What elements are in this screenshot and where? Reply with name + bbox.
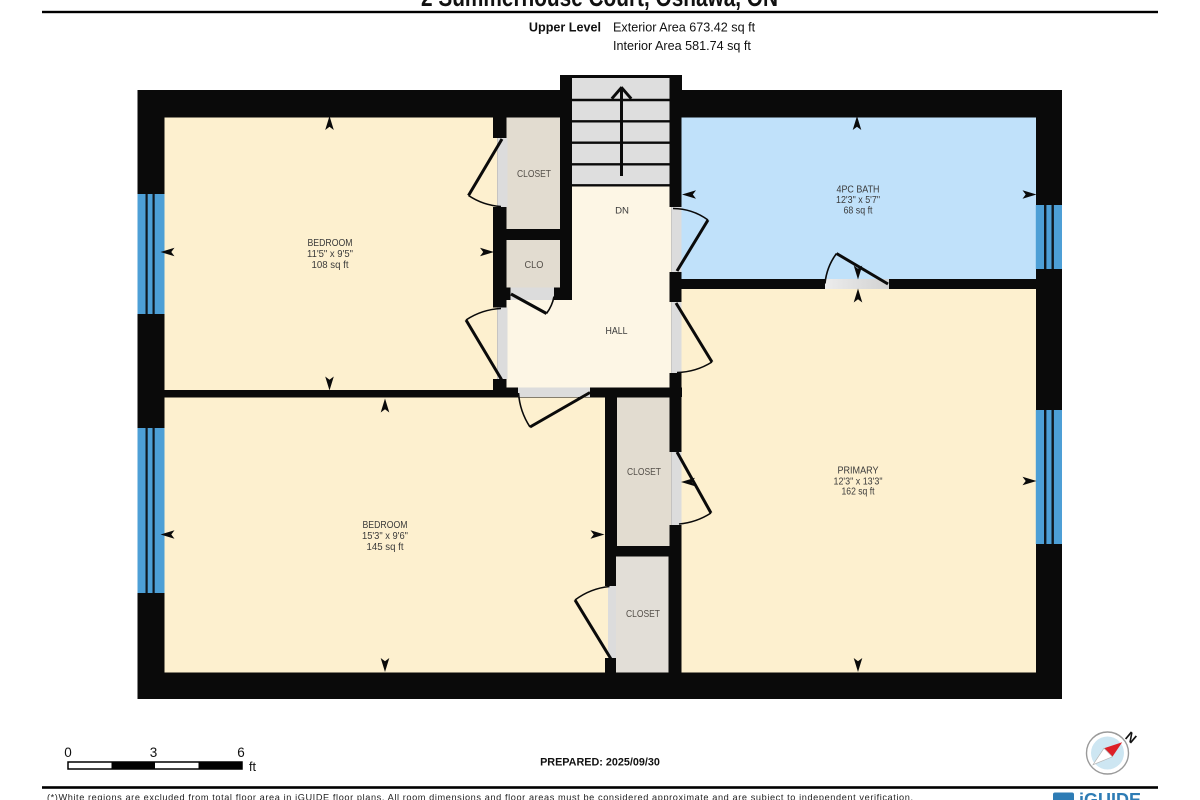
svg-text:BEDROOM: BEDROOM	[363, 520, 408, 531]
svg-text:ft: ft	[249, 760, 256, 774]
svg-text:DN: DN	[615, 206, 629, 217]
svg-text:Exterior Area 673.42 sq ft: Exterior Area 673.42 sq ft	[613, 21, 756, 35]
svg-text:CLOSET: CLOSET	[517, 169, 551, 180]
svg-text:12'3" x 5'7": 12'3" x 5'7"	[836, 195, 880, 206]
svg-text:CLOSET: CLOSET	[626, 609, 660, 620]
svg-text:CLOSET: CLOSET	[627, 467, 661, 478]
svg-text:0: 0	[64, 745, 72, 760]
svg-text:162 sq ft: 162 sq ft	[842, 487, 875, 498]
svg-text:2 Summerhouse Court, Oshawa, O: 2 Summerhouse Court, Oshawa, ON	[421, 0, 778, 12]
svg-text:PREPARED: 2025/09/30: PREPARED: 2025/09/30	[540, 757, 660, 769]
svg-text:Interior Area 581.74 sq ft: Interior Area 581.74 sq ft	[613, 39, 751, 53]
svg-text:6: 6	[237, 745, 245, 760]
svg-text:HALL: HALL	[606, 326, 628, 337]
svg-text:11'5" x 9'5": 11'5" x 9'5"	[307, 249, 353, 260]
svg-text:4PC BATH: 4PC BATH	[837, 185, 880, 196]
svg-text:Upper Level: Upper Level	[529, 21, 601, 35]
svg-text:15'3" x 9'6": 15'3" x 9'6"	[362, 531, 408, 542]
svg-text:CLO: CLO	[525, 260, 544, 271]
svg-text:(*)White regions are excluded: (*)White regions are excluded from total…	[47, 793, 913, 800]
svg-text:68 sq ft: 68 sq ft	[844, 206, 873, 217]
svg-text:108 sq ft: 108 sq ft	[312, 260, 349, 271]
svg-text:3: 3	[150, 745, 158, 760]
svg-text:PRIMARY: PRIMARY	[838, 466, 879, 477]
svg-text:BEDROOM: BEDROOM	[308, 238, 353, 249]
svg-text:145 sq ft: 145 sq ft	[367, 542, 404, 553]
svg-text:iGUIDE: iGUIDE	[1079, 790, 1141, 800]
